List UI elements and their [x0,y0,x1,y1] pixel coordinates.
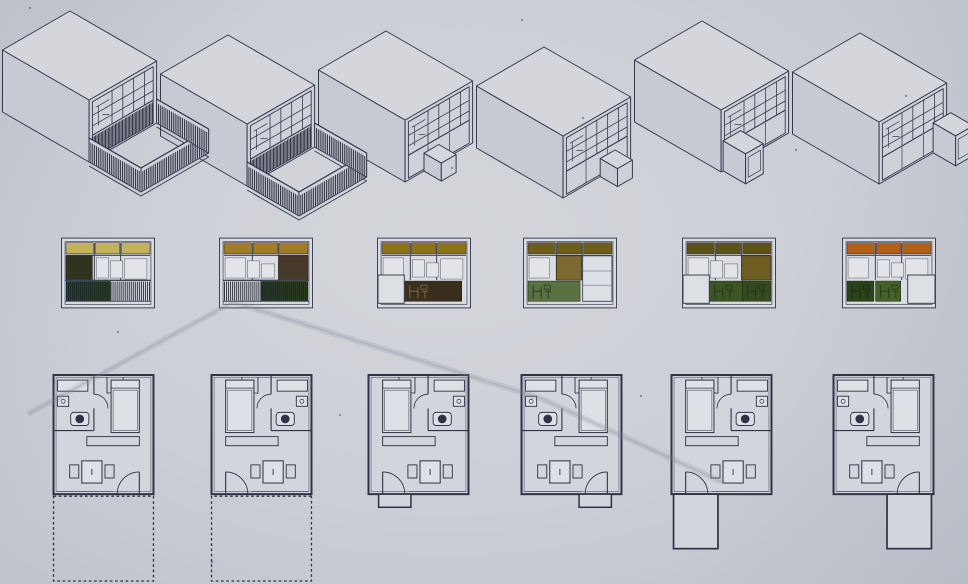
dust-speck [640,395,642,397]
elevation-view-unit-1 [60,236,156,310]
dust-speck [582,117,584,119]
dust-speck [451,167,453,169]
floor-plan-unit-3 [363,372,475,584]
axonometric-row [0,0,968,584]
axonometric-view-unit-5 [630,16,872,221]
elevations-row [0,0,968,584]
axonometric-view-unit-1 [0,6,240,211]
wire-shadow [28,302,722,482]
photo-artifact-overlay [0,0,968,584]
elevation-view-unit-5 [681,236,777,310]
elevation-view-unit-3 [376,236,472,310]
floor-plan-unit-1 [48,372,160,584]
axonometric-view-unit-4 [472,42,714,247]
drawing-board [0,0,968,584]
dust-speck [29,7,31,9]
floor-plan-unit-4 [516,372,628,584]
dust-speck [339,414,341,416]
floor-plan-unit-5 [666,372,778,584]
elevation-view-unit-2 [218,236,314,310]
dust-speck [211,561,213,563]
floor-plans-row [0,0,968,584]
axonometric-view-unit-2 [156,30,398,235]
axonometric-view-unit-3 [314,26,556,231]
elevation-view-unit-4 [522,236,618,310]
dust-speck [521,19,523,21]
floor-plan-unit-6 [828,372,940,584]
dust-speck [795,149,797,151]
axonometric-view-unit-6 [788,28,968,233]
elevation-view-unit-6 [841,236,937,310]
dust-speck [117,331,119,333]
dust-speck [905,95,907,97]
floor-plan-unit-2 [206,372,318,584]
